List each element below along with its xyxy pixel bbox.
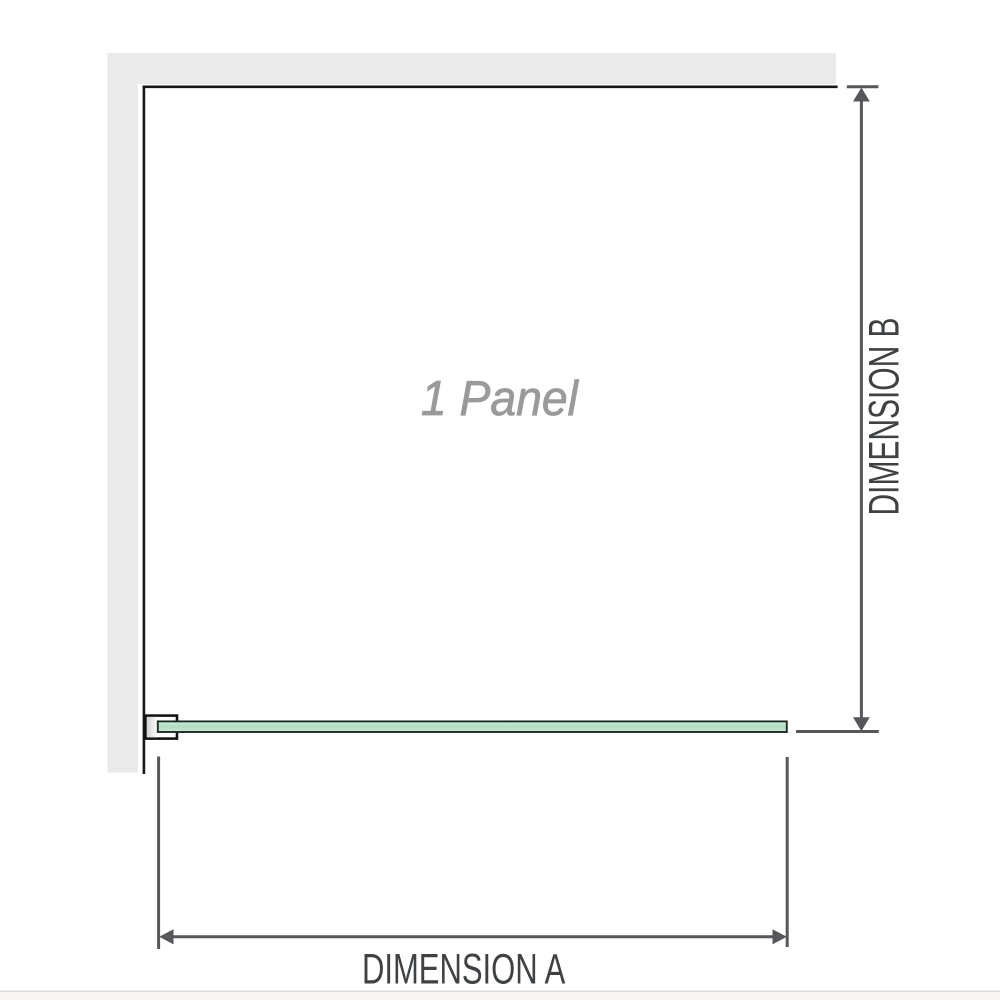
svg-text:1 Panel: 1 Panel [421, 372, 579, 426]
svg-text:DIMENSION B: DIMENSION B [860, 317, 907, 515]
svg-text:DIMENSION A: DIMENSION A [362, 945, 565, 993]
